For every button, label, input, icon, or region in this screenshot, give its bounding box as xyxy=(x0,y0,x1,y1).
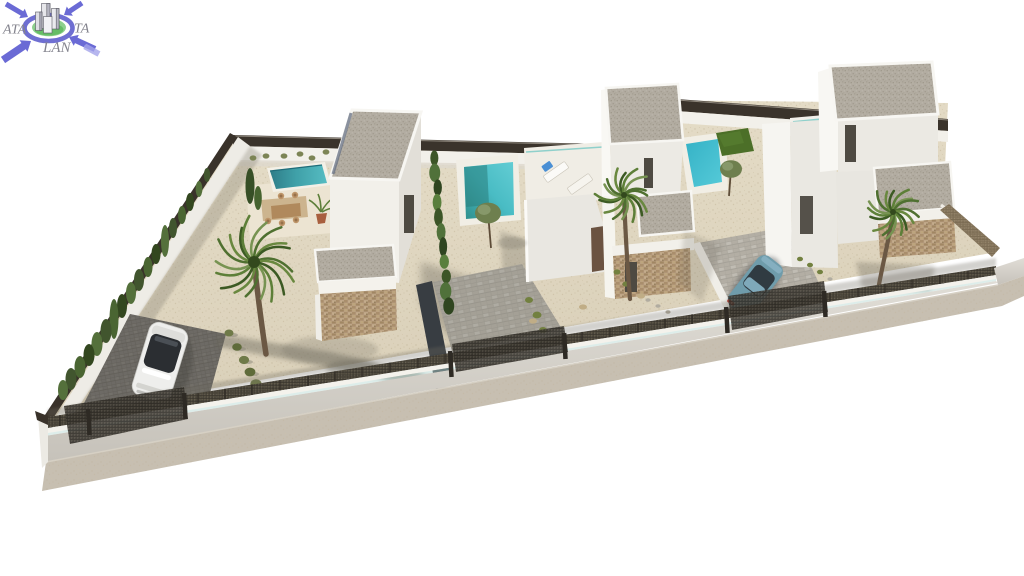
svg-text:ATA: ATA xyxy=(2,23,27,38)
svg-text:LAN: LAN xyxy=(42,40,72,56)
svg-text:TA: TA xyxy=(74,22,90,37)
